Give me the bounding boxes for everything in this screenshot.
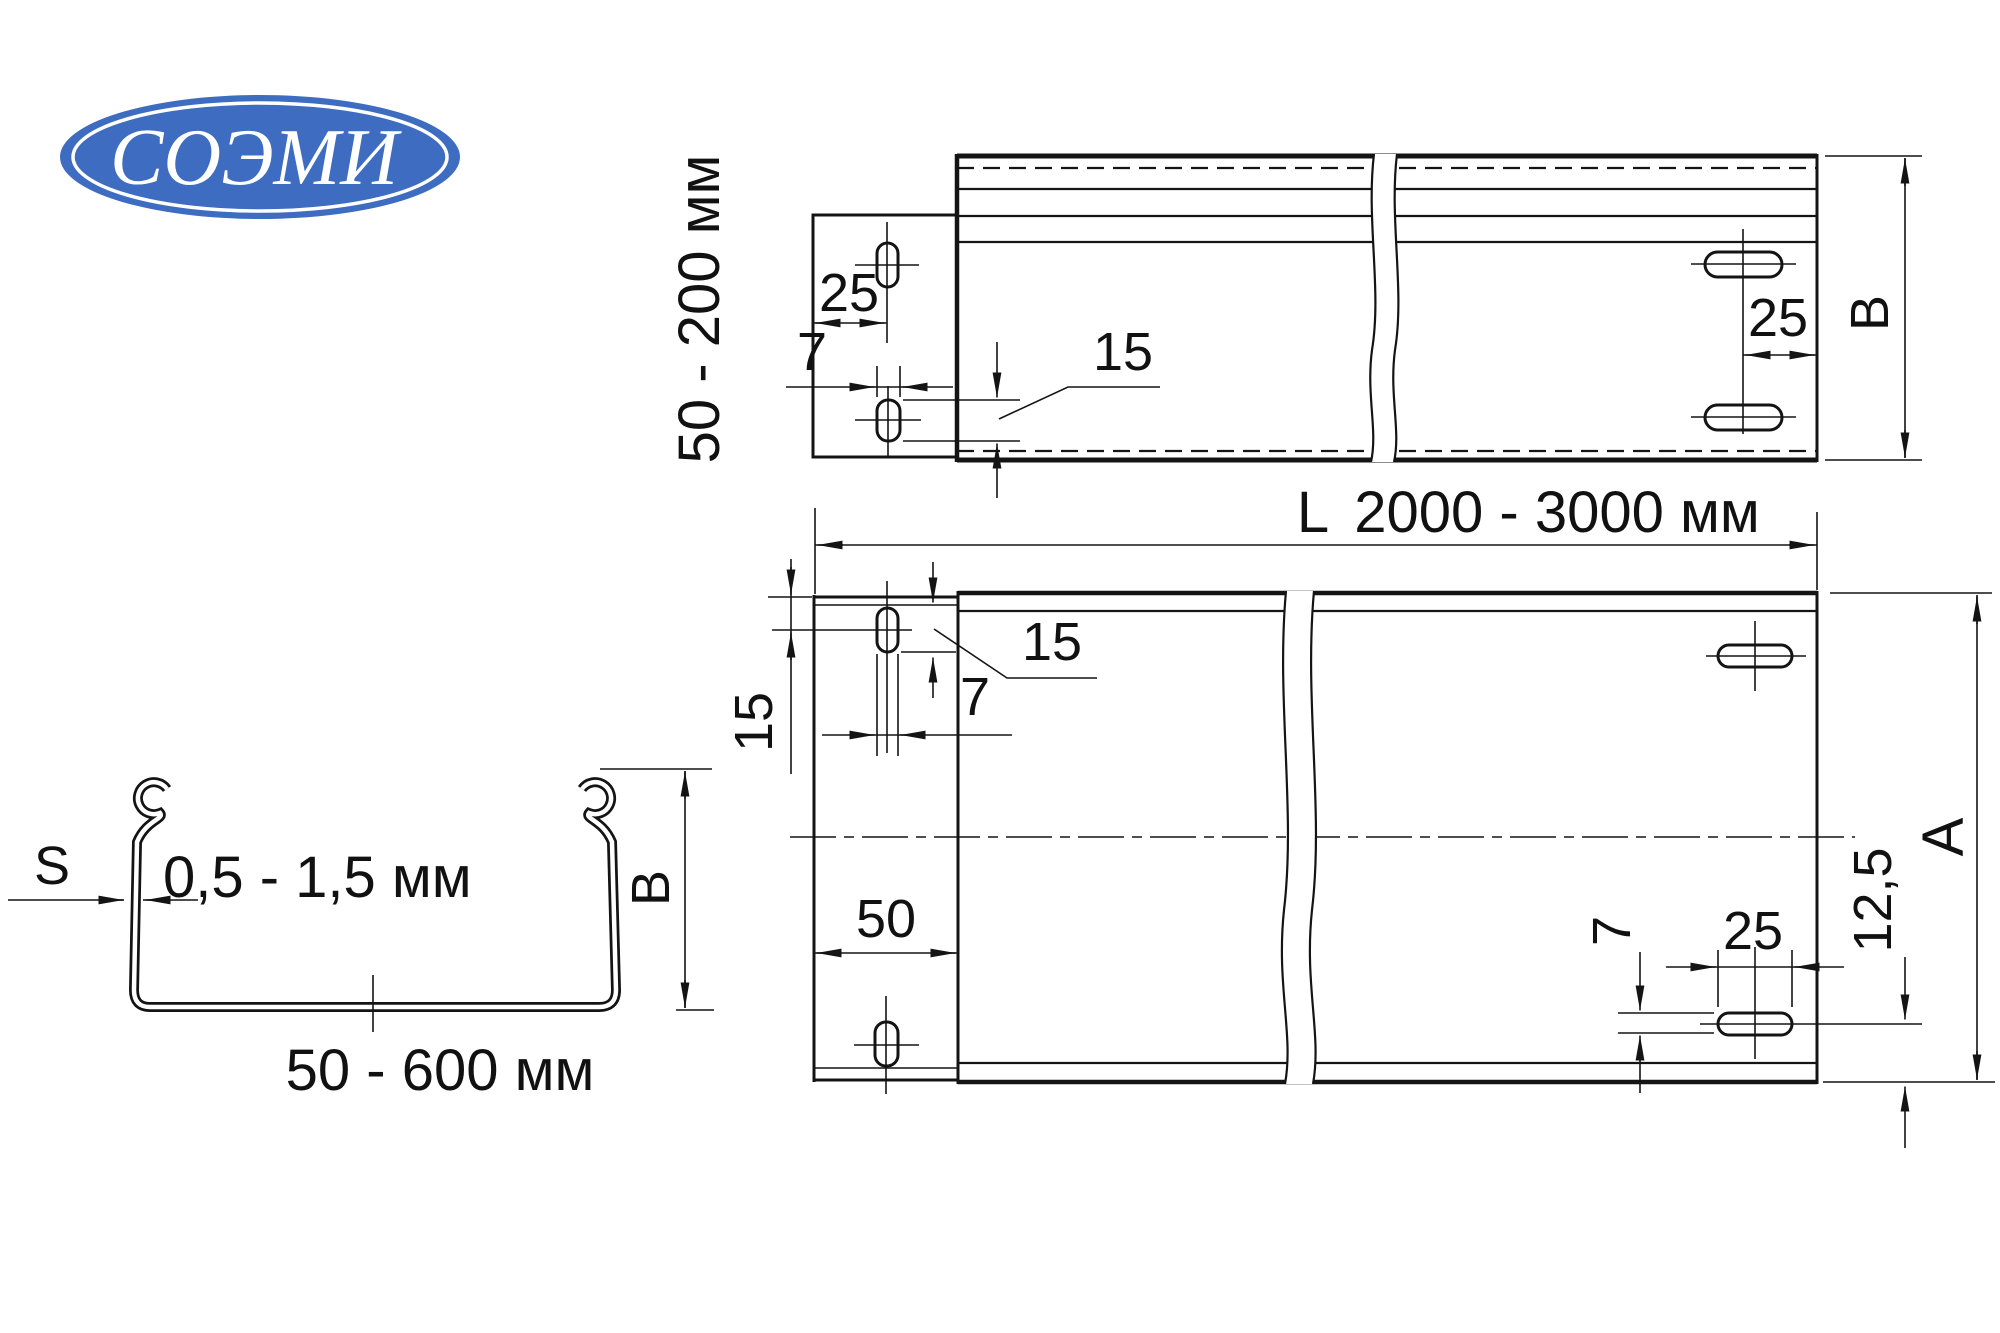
height-range-label: 50 - 200 мм — [667, 155, 732, 464]
width-range-label: 50 - 600 мм — [286, 1038, 595, 1103]
dim-15-left: 15 — [724, 692, 784, 752]
thickness-range: 0,5 - 1,5 мм — [163, 845, 472, 910]
logo-text: СОЭМИ — [110, 114, 402, 202]
length-label: L — [1297, 480, 1329, 545]
length-range: 2000 - 3000 мм — [1354, 480, 1759, 545]
dim-12-5: 12,5 — [1843, 847, 1903, 952]
dim-15: 15 — [1093, 322, 1153, 382]
dim-7: 7 — [797, 322, 827, 382]
dim-7-top: 7 — [960, 667, 990, 727]
dim-a: A — [1911, 817, 1976, 856]
drawing-canvas: СОЭМИ 25 7 — [0, 0, 2000, 1333]
thickness-label: S — [34, 836, 70, 896]
dim-25-plan: 25 — [1723, 901, 1783, 961]
dim-b-side: B — [1840, 295, 1900, 331]
dim-b-section: B — [621, 870, 681, 906]
technical-drawing-page: СОЭМИ 25 7 — [0, 0, 2000, 1333]
dim-25-left: 25 — [819, 263, 879, 323]
side-view: 25 7 15 25 B 50 — [667, 154, 1922, 498]
company-logo: СОЭМИ — [60, 95, 460, 219]
dim-25-right: 25 — [1748, 288, 1808, 348]
length-dimension: L 2000 - 3000 мм — [815, 480, 1817, 594]
dim-15-leader: 15 — [1022, 612, 1082, 672]
plan-view: 15 15 7 50 7 25 — [724, 559, 1995, 1148]
dim-7-right: 7 — [1582, 916, 1642, 946]
section-view: S 0,5 - 1,5 мм B 50 - 600 мм — [8, 769, 714, 1103]
dim-50: 50 — [856, 889, 916, 949]
